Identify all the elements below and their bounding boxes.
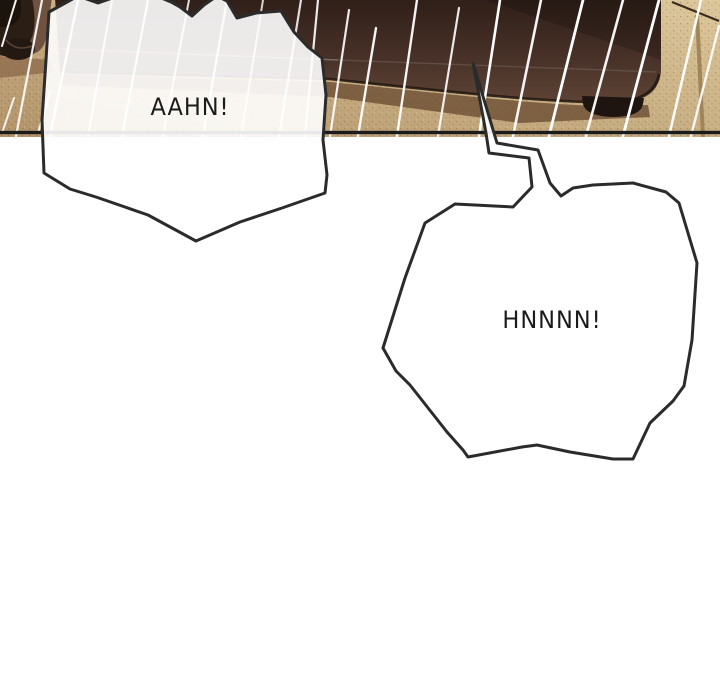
- comic-page: AAHN! HNNNN!: [0, 0, 720, 700]
- speech-bubble-layer: [0, 0, 720, 700]
- speech-text-aahn: AAHN!: [141, 93, 239, 121]
- speech-bubble-hnnnn: [383, 63, 697, 459]
- speech-text-hnnnn: HNNNN!: [496, 306, 609, 334]
